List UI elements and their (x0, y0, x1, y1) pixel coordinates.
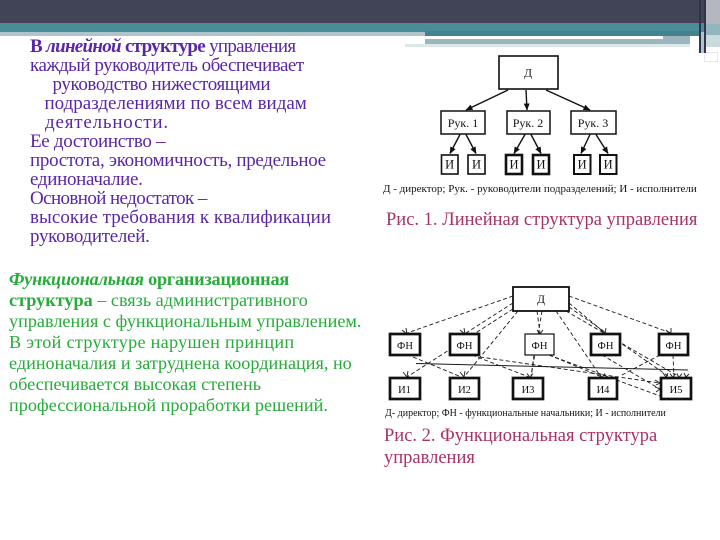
svg-text:И: И (604, 158, 613, 172)
svg-text:И: И (472, 158, 481, 172)
svg-text:ФН: ФН (598, 341, 614, 352)
svg-text:Рук. 2: Рук. 2 (513, 116, 544, 130)
svg-text:ФН: ФН (397, 341, 413, 352)
svg-text:И: И (445, 158, 454, 172)
svg-text:Рук. 3: Рук. 3 (578, 116, 609, 130)
svg-text:ФН: ФН (532, 341, 548, 352)
svg-text:Рук. 1: Рук. 1 (448, 116, 479, 130)
svg-text:И5: И5 (670, 385, 683, 396)
svg-text:И1: И1 (398, 385, 411, 396)
svg-text:Д: Д (537, 294, 545, 306)
svg-text:И2: И2 (458, 385, 471, 396)
svg-text:И: И (509, 158, 518, 172)
svg-text:ФН: ФН (457, 341, 473, 352)
svg-text:И3: И3 (522, 385, 535, 396)
svg-text:Д: Д (524, 68, 532, 80)
svg-text:И: И (578, 158, 587, 172)
svg-text:ФН: ФН (666, 341, 682, 352)
svg-text:И: И (536, 158, 545, 172)
svg-text:И4: И4 (597, 385, 611, 396)
